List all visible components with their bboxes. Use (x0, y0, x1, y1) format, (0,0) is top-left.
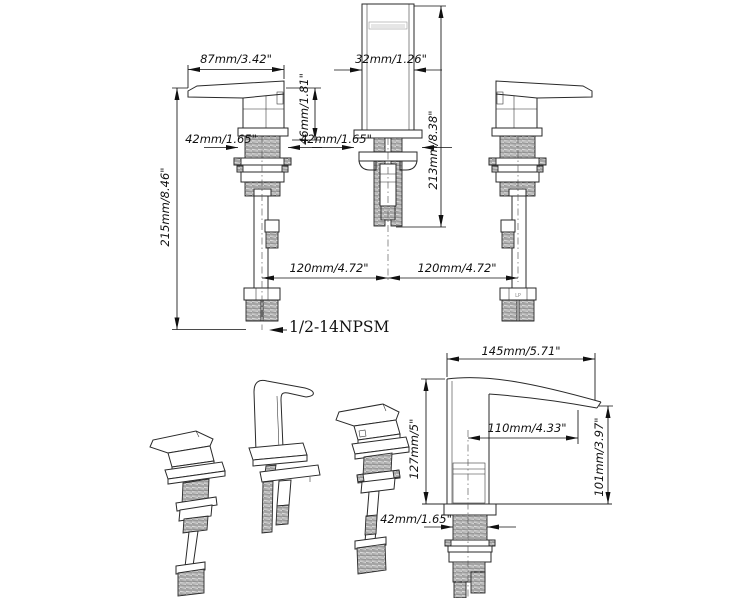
dim-hole-spacing-right-label: 120mm/4.72" (417, 261, 496, 275)
front-right-handle: LP (489, 81, 592, 321)
side-view: 145mm/5.71" 127mm/5" 110mm/4.33" 101mm/3… (380, 344, 613, 598)
dim-handle-base-width-label: 42mm/1.65" (185, 132, 257, 146)
dim-hole-spacing-right: 120mm/4.72" (388, 261, 518, 281)
dim-spout-length: 145mm/5.71" (447, 344, 595, 400)
dim-spout-length-label: 145mm/5.71" (481, 344, 560, 358)
dim-spout-reach-label: 110mm/4.33" (487, 421, 566, 435)
iso-right-handle (336, 404, 409, 574)
dim-total-height: 215mm/8.46" (158, 88, 246, 330)
connector-mark-label: LP (515, 293, 521, 299)
front-view: LP 87mm/3.42" 32mm/1.26" 46mm/1.81" (158, 4, 592, 336)
drawing-svg: LP 87mm/3.42" 32mm/1.26" 46mm/1.81" (0, 0, 729, 598)
iso-view (150, 380, 409, 596)
dim-deck-to-top: 127mm/5" (407, 379, 445, 504)
dim-spout-height-label: 213mm/8.38" (426, 110, 440, 189)
dim-outlet-height-label: 101mm/3.97" (592, 417, 606, 496)
side-spout-body (422, 378, 612, 598)
dim-deck-to-top-label: 127mm/5" (407, 419, 421, 480)
dim-shank-width-label: 42mm/1.65" (380, 512, 452, 526)
iso-left-handle (150, 431, 225, 596)
dim-hole-spacing-left-label: 120mm/4.72" (289, 261, 368, 275)
thread-spec-callout: 1/2-14NPSM (269, 318, 390, 336)
iso-spout (249, 380, 320, 533)
dim-total-height-label: 215mm/8.46" (158, 167, 172, 246)
dim-spout-base-width-label: 42mm/1.65" (300, 132, 372, 146)
dim-spout-reach: 110mm/4.33" (468, 410, 578, 444)
front-left-handle (188, 81, 291, 330)
dim-spout-top-width-label: 32mm/1.26" (355, 52, 427, 66)
dim-hole-spacing-left: 120mm/4.72" (262, 261, 388, 281)
faucet-dimension-drawing: LP 87mm/3.42" 32mm/1.26" 46mm/1.81" (0, 0, 729, 598)
dim-outlet-height: 101mm/3.97" (592, 406, 613, 504)
thread-spec-label: 1/2-14NPSM (289, 318, 390, 336)
dim-handle-width-label: 87mm/3.42" (200, 52, 272, 66)
